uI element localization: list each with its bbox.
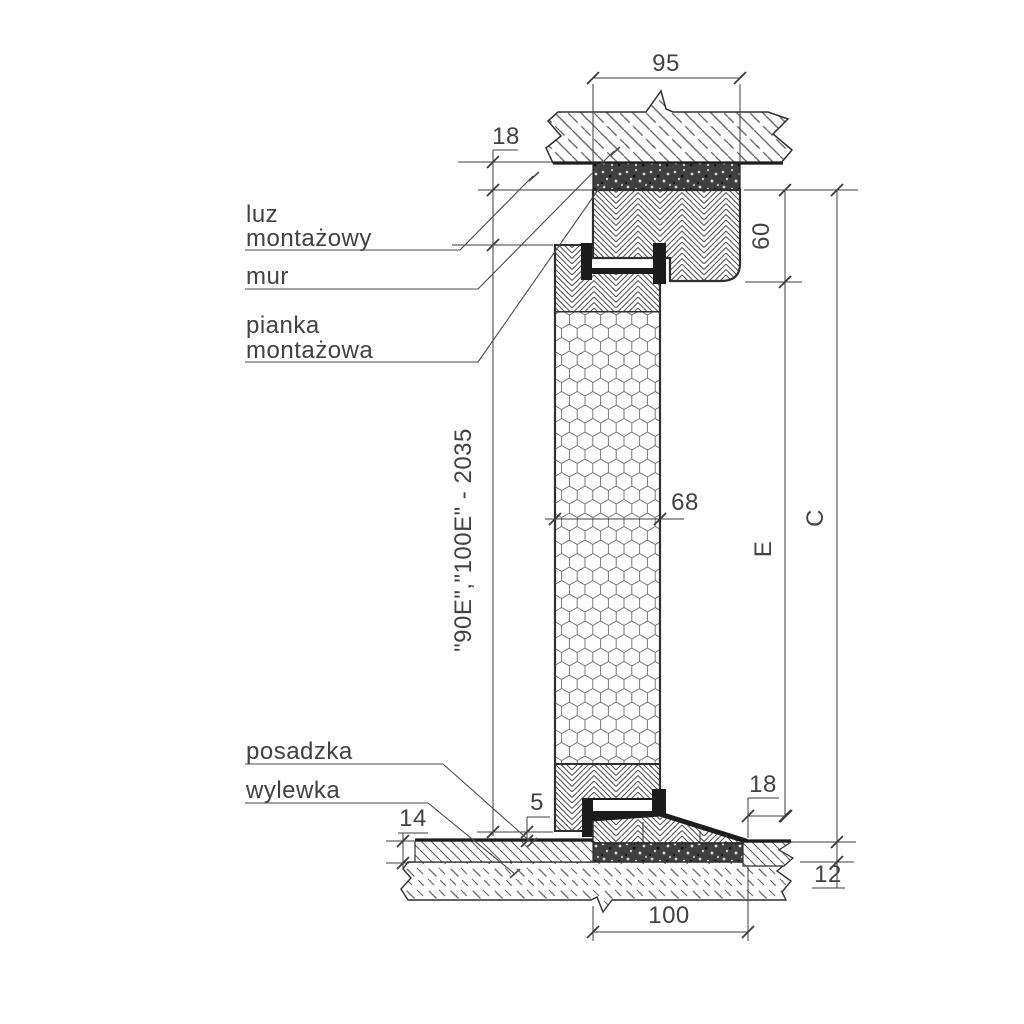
dim-threshold-edge-offset: 18 [749,771,777,798]
dim-leaf-height: "90E","100E" - 2035 [450,428,477,652]
screed-body [401,862,791,912]
label-pianka-line2: montażowa [246,337,373,364]
dim-floor-finish-right: 12 [814,861,842,888]
label-luz-line1: luz [246,201,278,228]
bottom-seal-carrier [591,799,660,812]
label-posadzka: posadzka [246,738,353,765]
posadzka-right-body [743,842,793,866]
mounting-foam-bottom [593,843,748,862]
label-wylewka: wylewka [245,777,340,804]
foam-band-bottom [593,843,748,862]
dim-opening-height: E [750,541,777,558]
dim-top-width: 95 [652,50,680,77]
leaf-honeycomb-core [555,312,660,764]
label-mur: mur [246,263,289,290]
label-pianka-line1: pianka [246,312,320,339]
posadzka-left-body [415,841,593,862]
dim-leaf-thickness: 68 [671,489,699,516]
dim-floor-finish-left: 14 [399,805,427,832]
top-gasket-left [581,243,592,280]
screed-layer [401,862,791,912]
wall-hatched-body [546,91,792,163]
floor-finish-left [415,840,593,862]
foam-band-top [593,163,740,190]
dim-total-height: C [802,509,829,527]
technical-drawing-page: 95 18 60 68 "90E","100E" - 2035 E C 18 5… [0,0,1024,1024]
label-luz-line2: montażowy [246,225,372,252]
floor-finish-right [743,841,793,866]
dim-threshold-width: 100 [648,902,690,929]
door-leaf [555,245,660,831]
dim-bottom-clearance: 5 [530,789,544,816]
wall-section [546,91,792,163]
door-section-drawing: 95 18 60 68 "90E","100E" - 2035 E C 18 5… [0,0,1024,1024]
dim-frame-head-height: 60 [748,222,775,250]
top-gasket-right [653,243,666,284]
dim-top-clearance: 18 [492,123,520,150]
